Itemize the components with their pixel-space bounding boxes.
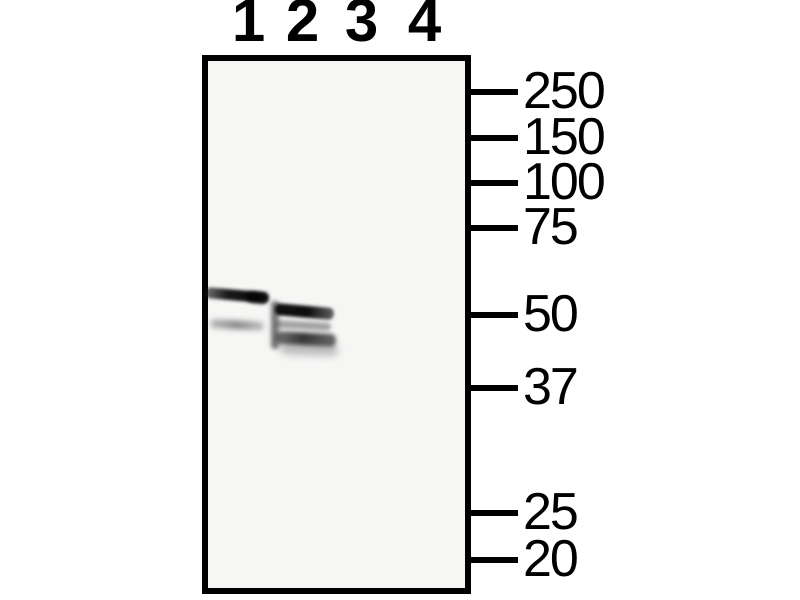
mw-tick-50 <box>468 312 518 318</box>
lane-label-1: 1 <box>232 0 264 51</box>
mw-tick-75 <box>468 225 518 231</box>
protein-band-lane-1 <box>246 291 268 304</box>
mw-tick-25 <box>468 510 518 516</box>
mw-label-50: 50 <box>523 288 577 340</box>
mw-label-20: 20 <box>523 533 577 585</box>
mw-tick-20 <box>468 557 518 563</box>
lane-label-4: 4 <box>408 0 440 51</box>
mw-tick-37 <box>468 385 518 391</box>
mw-tick-150 <box>468 135 518 141</box>
mw-tick-250 <box>468 89 518 95</box>
mw-label-75: 75 <box>523 201 577 253</box>
lane-label-3: 3 <box>345 0 377 51</box>
western-blot-figure: 1234 2501501007550372520 <box>0 0 800 600</box>
mw-tick-100 <box>468 180 518 186</box>
mw-label-37: 37 <box>523 361 577 413</box>
lane-label-2: 2 <box>286 0 318 51</box>
protein-band-lane-2 <box>280 342 338 356</box>
